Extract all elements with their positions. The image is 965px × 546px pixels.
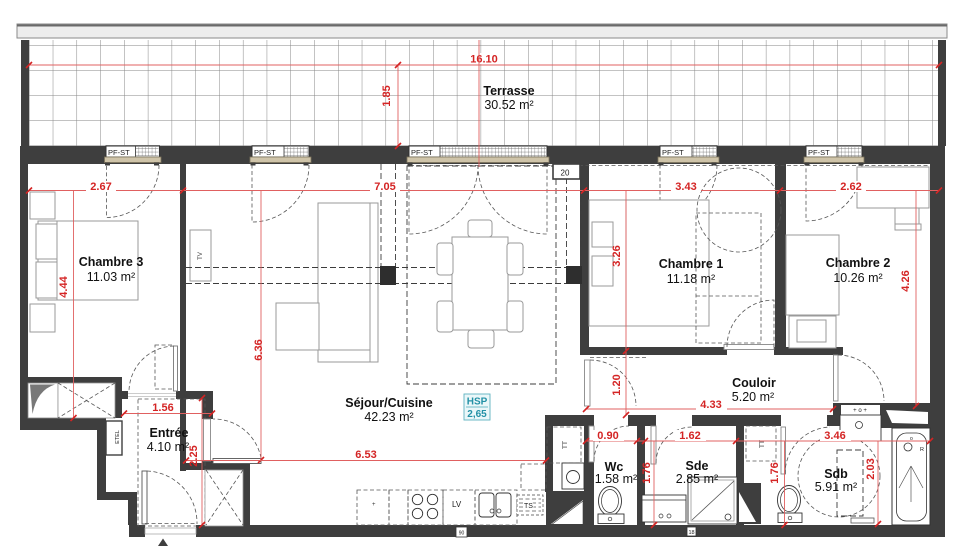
svg-text:HSP: HSP [467,397,488,408]
svg-text:+ o +: + o + [853,408,867,414]
svg-text:1.20: 1.20 [611,374,623,395]
svg-text:TV: TV [198,252,204,260]
svg-text:30.52 m²: 30.52 m² [484,98,533,112]
svg-text:10.26 m²: 10.26 m² [833,271,882,285]
svg-text:1.85: 1.85 [381,85,393,106]
svg-text:4.44: 4.44 [58,275,70,297]
svg-text:2.25: 2.25 [188,445,200,466]
svg-text:1.76: 1.76 [769,462,781,483]
svg-text:PF-ST: PF-ST [254,148,276,157]
svg-text:18: 18 [688,530,694,536]
svg-text:5.91 m²: 5.91 m² [815,480,857,494]
svg-text:4.33: 4.33 [700,399,721,411]
svg-text:3.46: 3.46 [824,430,845,442]
svg-text:5.20 m²: 5.20 m² [732,390,774,404]
svg-text:0.90: 0.90 [597,430,618,442]
svg-text:4.10 m²: 4.10 m² [147,440,189,454]
svg-text:PF-ST: PF-ST [662,148,684,157]
svg-text:6.36: 6.36 [253,339,265,360]
svg-text:Couloir: Couloir [732,376,776,390]
svg-text:TT: TT [562,441,569,449]
svg-text:R: R [920,447,924,453]
svg-text:PF-ST: PF-ST [808,148,830,157]
svg-text:PF-ST: PF-ST [411,148,433,157]
svg-text:ETEL: ETEL [115,430,121,444]
svg-text:Chambre 3: Chambre 3 [79,255,144,269]
svg-text:Entrée: Entrée [150,426,189,440]
svg-text:6.53: 6.53 [355,449,376,461]
svg-text:1.76: 1.76 [641,462,653,483]
svg-text:2.85 m²: 2.85 m² [676,472,718,486]
svg-text:Séjour/Cuisine: Séjour/Cuisine [345,396,433,410]
svg-text:TS: TS [524,503,533,510]
svg-text:16.10: 16.10 [470,54,498,66]
svg-text:LV: LV [452,500,462,509]
svg-text:7.05: 7.05 [374,181,395,193]
svg-text:2.03: 2.03 [865,458,877,479]
svg-text:PF-ST: PF-ST [108,148,130,157]
svg-text:4.26: 4.26 [900,270,912,291]
svg-text:Sdb: Sdb [824,467,848,481]
svg-text:2.67: 2.67 [90,181,111,193]
svg-text:Sde: Sde [686,459,709,473]
svg-text:1.56: 1.56 [152,402,173,414]
svg-text:3.43: 3.43 [675,181,696,193]
svg-text:1.58 m²: 1.58 m² [595,472,637,486]
svg-text:1.62: 1.62 [679,430,700,442]
svg-text:Chambre 2: Chambre 2 [826,256,891,270]
svg-text:11.18 m²: 11.18 m² [667,272,715,286]
svg-text:Chambre 1: Chambre 1 [659,257,724,271]
svg-text:20: 20 [561,169,570,178]
svg-text:2,65: 2,65 [467,409,487,420]
svg-text:90: 90 [459,531,465,537]
svg-text:42.23 m²: 42.23 m² [364,410,413,424]
svg-text:Terrasse: Terrasse [483,84,534,98]
svg-text:11.03 m²: 11.03 m² [87,270,135,284]
svg-text:+: + [372,502,376,508]
svg-text:2.62: 2.62 [840,181,861,193]
svg-text:3.26: 3.26 [611,245,623,266]
